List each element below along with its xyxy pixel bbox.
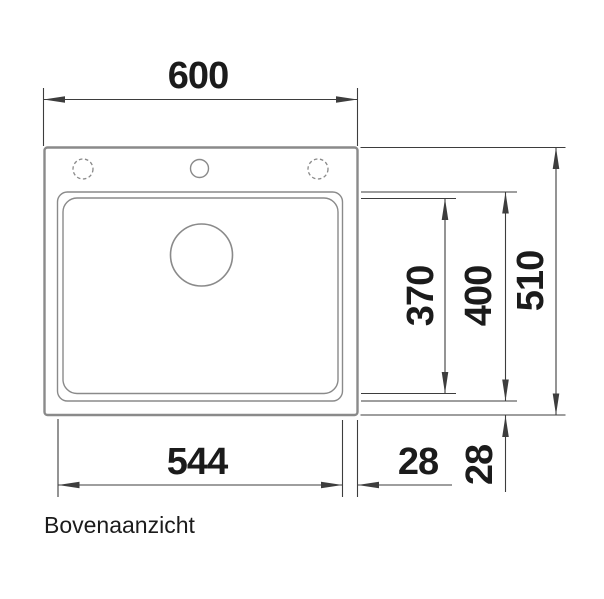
arrow-up <box>442 199 449 221</box>
dim-label-total-depth: 510 <box>512 251 550 311</box>
dim-label-rim-bottom: 28 <box>461 445 499 485</box>
arrow-right <box>336 96 358 103</box>
arrow-down <box>553 394 560 416</box>
dim-rim-bottom <box>502 416 509 493</box>
technical-drawing-top-view: 600 510 400 370 544 28 28 Bovenaanzicht <box>0 0 604 599</box>
arrow-left <box>58 482 80 489</box>
dim-label-basin-width: 544 <box>167 443 227 481</box>
dim-label-rim-right: 28 <box>398 443 438 481</box>
drain-hole <box>171 224 233 286</box>
tap-hole-right-optional <box>308 159 328 179</box>
dim-label-total-width: 600 <box>168 57 228 95</box>
basin-inner-edge <box>63 198 338 394</box>
tap-hole-center <box>191 160 209 178</box>
sink-outline <box>45 148 358 416</box>
view-caption: Bovenaanzicht <box>44 512 195 538</box>
tap-hole-left-optional <box>73 159 93 179</box>
dim-label-basin-inner-depth: 370 <box>402 266 440 326</box>
arrow-down <box>502 380 509 402</box>
arrow-up <box>502 192 509 214</box>
arrow-up <box>553 148 560 170</box>
arrow-left <box>44 96 66 103</box>
arrow-up <box>502 416 509 438</box>
arrow-right <box>321 482 343 489</box>
sink-shape <box>45 148 358 416</box>
dim-label-basin-depth: 400 <box>460 266 498 326</box>
arrow-left <box>358 482 380 489</box>
arrow-down <box>442 372 449 394</box>
